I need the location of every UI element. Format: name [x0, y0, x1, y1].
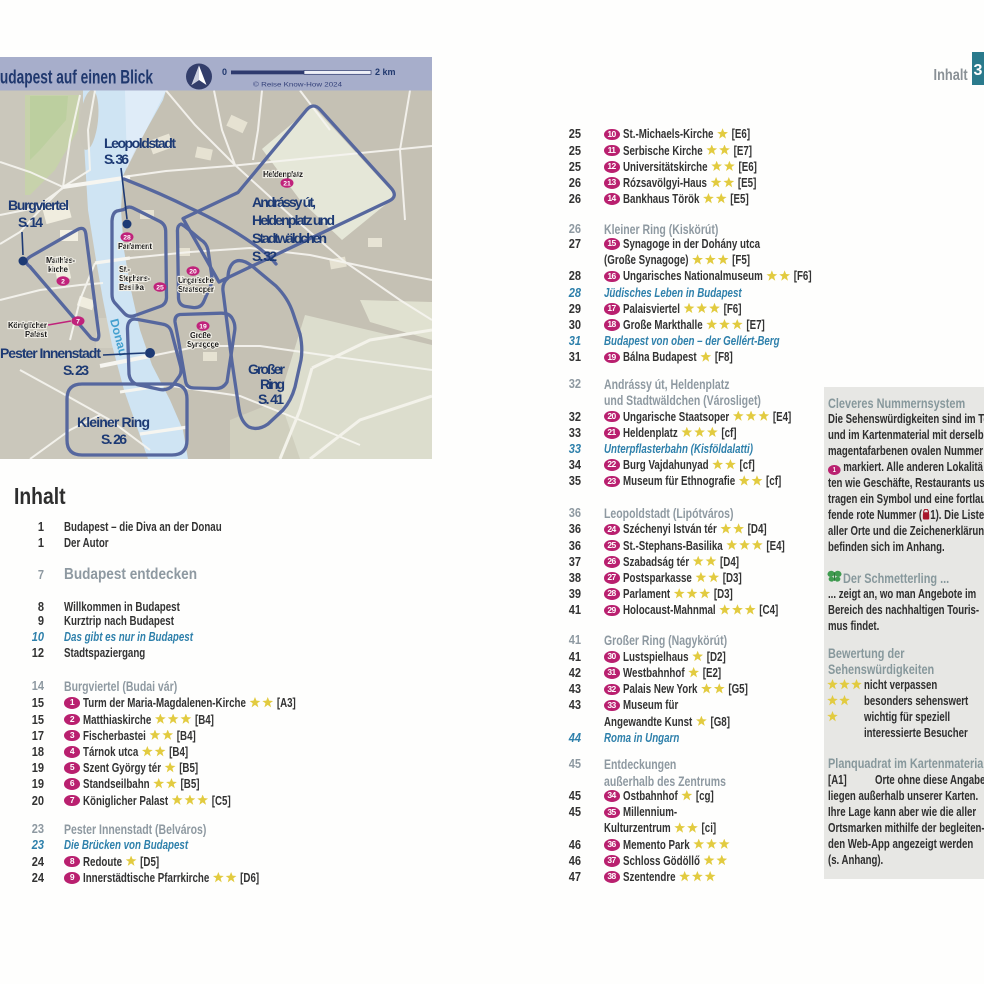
svg-text:7: 7 — [76, 319, 80, 326]
svg-text:Synagoge: Synagoge — [187, 340, 220, 349]
svg-text:Großer: Großer — [248, 361, 286, 377]
svg-text:Heldenplatz und: Heldenplatz und — [252, 212, 335, 228]
svg-text:Leopoldstadt: Leopoldstadt — [104, 135, 176, 151]
svg-text:Burgviertel: Burgviertel — [8, 197, 69, 213]
svg-text:21: 21 — [283, 181, 291, 188]
svg-text:Palast: Palast — [25, 330, 47, 339]
svg-text:2 km: 2 km — [375, 67, 396, 77]
svg-text:Große: Große — [190, 331, 212, 340]
svg-text:S. 26: S. 26 — [101, 431, 127, 447]
svg-text:Königlicher: Königlicher — [8, 321, 47, 330]
svg-text:Stadtwäldchen: Stadtwäldchen — [252, 230, 327, 246]
svg-text:Ungarische: Ungarische — [178, 276, 215, 285]
svg-text:S. 14: S. 14 — [18, 214, 43, 230]
svg-text:20: 20 — [189, 269, 197, 276]
svg-text:0: 0 — [222, 67, 227, 77]
svg-text:Heldenplatz: Heldenplatz — [263, 170, 303, 179]
svg-text:19: 19 — [199, 324, 207, 331]
svg-text:S. 36: S. 36 — [104, 151, 129, 167]
svg-text:2: 2 — [61, 279, 65, 286]
svg-text:© Reise Know-How 2024: © Reise Know-How 2024 — [253, 81, 342, 89]
svg-text:25: 25 — [156, 285, 164, 292]
svg-text:Budapest auf einen Blick: Budapest auf einen Blick — [0, 68, 153, 89]
svg-text:Staatsoper: Staatsoper — [178, 285, 214, 294]
svg-text:Parlament: Parlament — [118, 242, 152, 251]
svg-text:S. 23: S. 23 — [63, 362, 89, 378]
svg-text:S. 32: S. 32 — [252, 248, 277, 264]
svg-text:kirche: kirche — [48, 265, 69, 274]
svg-text:Stephans-: Stephans- — [119, 274, 150, 283]
svg-text:28: 28 — [123, 235, 131, 242]
svg-text:Andrássy út,: Andrássy út, — [252, 194, 316, 210]
svg-text:St.-: St.- — [119, 265, 130, 274]
svg-text:Ring: Ring — [260, 376, 285, 392]
svg-text:Kleiner Ring: Kleiner Ring — [77, 414, 150, 430]
svg-text:Pester Innenstadt: Pester Innenstadt — [0, 345, 101, 361]
svg-text:Matthias-: Matthias- — [46, 256, 75, 265]
svg-text:Basilika: Basilika — [119, 283, 145, 292]
svg-text:S. 41: S. 41 — [258, 391, 284, 407]
